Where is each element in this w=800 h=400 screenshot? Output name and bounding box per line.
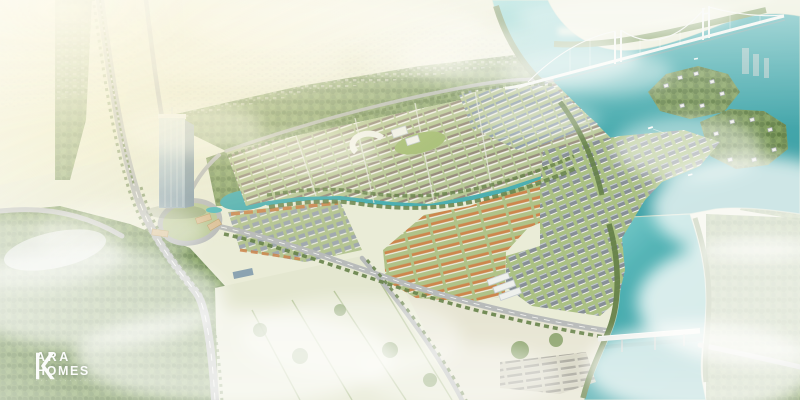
brand-k-icon: [36, 351, 55, 381]
render-canvas: ARA HOMES · · · · · · · · · · · · · ·: [0, 0, 800, 400]
brand-tagline: · · · · · · · · · · · · · ·: [36, 379, 102, 383]
aerial-scene: [0, 0, 800, 400]
clouds-and-haze: [0, 0, 800, 400]
brand-watermark: ARA HOMES · · · · · · · · · · · · · ·: [36, 351, 102, 383]
warm-tint: [0, 0, 800, 400]
